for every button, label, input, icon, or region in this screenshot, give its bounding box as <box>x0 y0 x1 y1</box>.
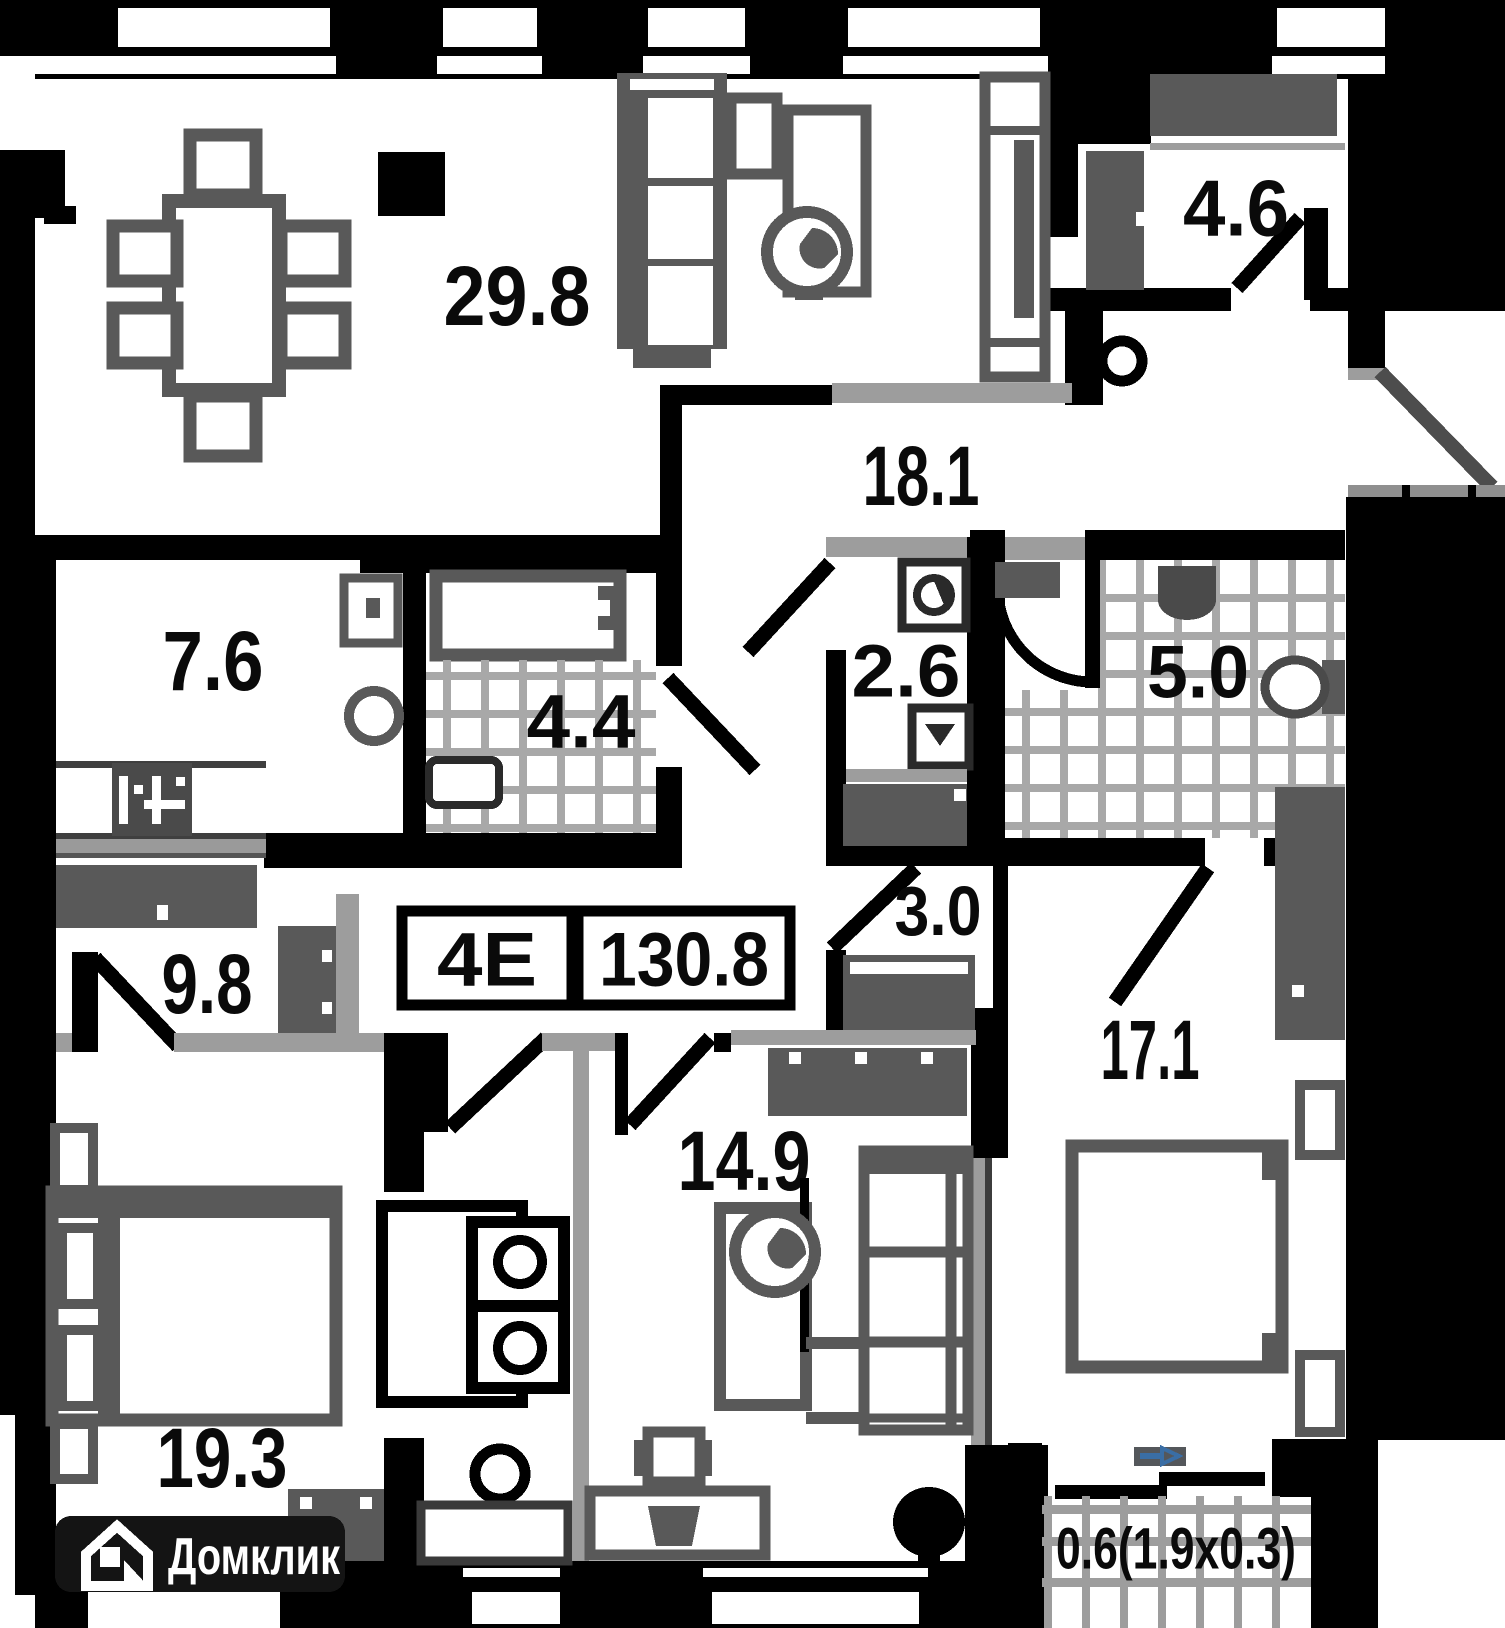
svg-text:3.0: 3.0 <box>895 872 982 950</box>
svg-text:5.0: 5.0 <box>1147 631 1249 714</box>
svg-text:18.1: 18.1 <box>863 429 980 523</box>
svg-text:14.9: 14.9 <box>678 1114 811 1208</box>
svg-text:19.3: 19.3 <box>157 1411 288 1505</box>
svg-text:130.8: 130.8 <box>599 918 769 1003</box>
svg-text:0.6(1.9x0.3): 0.6(1.9x0.3) <box>1056 1517 1296 1582</box>
svg-text:17.1: 17.1 <box>1101 1003 1200 1097</box>
svg-text:7.6: 7.6 <box>163 614 264 708</box>
svg-text:4.6: 4.6 <box>1183 164 1289 253</box>
svg-text:4Е: 4Е <box>437 918 537 1003</box>
svg-text:9.8: 9.8 <box>162 937 253 1031</box>
svg-text:29.8: 29.8 <box>444 249 591 343</box>
svg-text:4.4: 4.4 <box>527 680 636 765</box>
svg-text:Домклик: Домклик <box>168 1528 341 1586</box>
svg-text:2.6: 2.6 <box>852 630 961 713</box>
